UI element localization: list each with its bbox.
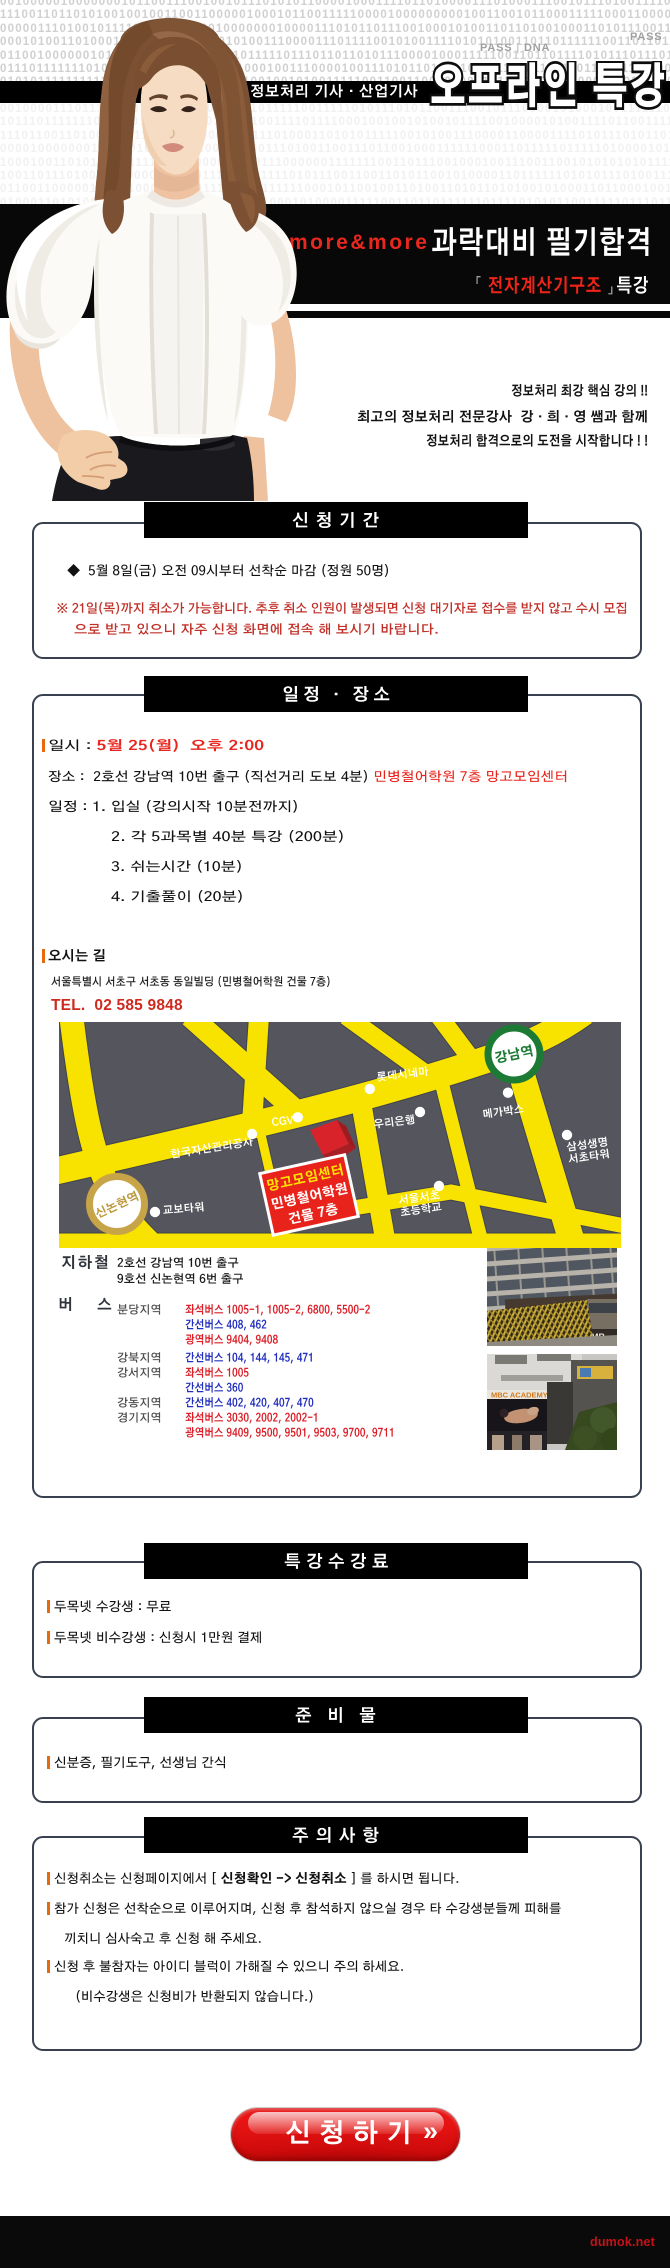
svg-text:MBC ACADEMY: MBC ACADEMY: [491, 1391, 548, 1400]
